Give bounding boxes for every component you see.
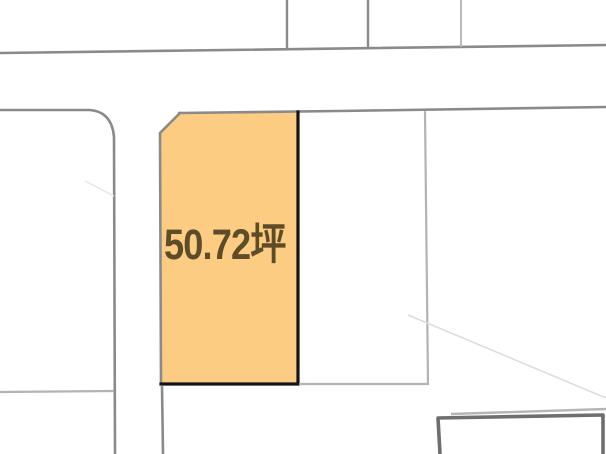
neighbor-building-outline: [438, 415, 603, 454]
land-plot-map: 50.72坪: [0, 0, 606, 454]
east-parcel-boundary: [300, 112, 428, 384]
left-block-corner-and-road-edge: [0, 110, 115, 454]
plot-area-label: 50.72坪: [164, 224, 285, 267]
block-top-boundary-right: [179, 107, 606, 113]
faint-diagonal-line-right: [408, 315, 606, 398]
west-parcel-line: [0, 391, 114, 392]
plot-boundary-south-extension: [162, 386, 163, 454]
map-lines-layer: [0, 0, 606, 454]
neighbor-building-roof-line: [451, 409, 606, 414]
top-road-line: [0, 45, 606, 53]
faint-diagonal-line-left: [85, 181, 114, 196]
